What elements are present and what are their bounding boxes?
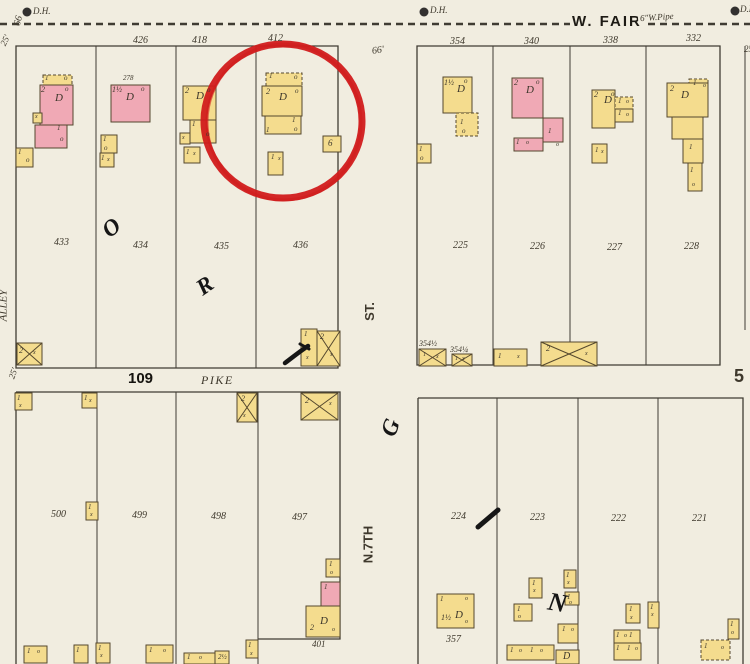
building-code-label: o (703, 83, 706, 89)
building-code-label: x (250, 651, 253, 657)
building-code-label: 1 (76, 647, 80, 654)
lot-number: 497 (292, 513, 307, 523)
building-code-label: o (462, 128, 466, 135)
building-code-label: o (692, 182, 695, 188)
building-code-label: D (55, 93, 63, 104)
building-code-label: 1 (103, 136, 107, 143)
building-code-label: o (626, 112, 629, 118)
building-code-label: o (465, 619, 468, 625)
building-code-label: o (540, 648, 543, 654)
building-code-label: D (526, 85, 534, 96)
building-code-label: 1 (595, 147, 599, 154)
building-code-label: 1 (192, 121, 196, 128)
street-label-pike: PIKE (201, 374, 234, 386)
building-code-label: 1 (498, 353, 502, 360)
building-code-label: o (163, 648, 166, 654)
address-number: 357 (446, 635, 461, 645)
building-code-label: D (563, 652, 570, 662)
building-code-label: 1 (186, 149, 190, 156)
building-code-label: 1 (618, 98, 622, 105)
building-code-label: 1 (618, 110, 622, 117)
building-code-label: 1 (423, 352, 426, 358)
building-code-label: 1 (548, 128, 552, 135)
building-code-label: 1 (693, 80, 697, 87)
building-code-label: 1 (248, 642, 252, 649)
building-code-label: x (585, 351, 588, 357)
pen-letter-r: R (192, 272, 218, 300)
building-code-label: 1 (517, 606, 521, 613)
building-code-label: 2 (241, 395, 245, 403)
block-number-109: 109 (128, 371, 153, 386)
building-code-label: o (60, 136, 64, 143)
building-code-label: o (420, 155, 424, 162)
building-code-label: 2 (670, 85, 674, 93)
address-number: 426 (133, 36, 148, 46)
building-code-label: 1 (27, 648, 31, 655)
building-code-label: 1 (329, 561, 333, 568)
building-code-label: x (651, 612, 654, 618)
building-code-label: o (207, 87, 211, 94)
building-code-label: o (295, 88, 299, 95)
map-labels-layer: D.H.D.H.D.HW. FAIR6″W.Pipe6625'426418412… (0, 0, 750, 664)
building-code-label: 1 (629, 632, 633, 639)
building-code-label: D (320, 616, 328, 627)
building-code-label: 1½ (112, 86, 122, 94)
building-code-label: 1 (17, 395, 21, 402)
lot-number: 435 (214, 242, 229, 252)
street-label-alley: ALLEY (0, 290, 9, 322)
pen-letter-g: G (377, 416, 404, 439)
building-code-label: x (100, 653, 103, 659)
building-code-label: o (37, 649, 40, 655)
building-code-label: 1½ (441, 614, 451, 622)
building-code-label: 2 (546, 345, 550, 353)
building-code-label: 1 (187, 654, 191, 661)
lot-number: 227 (607, 243, 622, 253)
pen-letter-n: N (546, 589, 569, 618)
hydrant-label: D.H (740, 5, 750, 14)
building-code-label: o (519, 648, 522, 654)
lot-number: 225 (453, 241, 468, 251)
dimension-label: 25' (0, 34, 12, 48)
building-code-label: 1 (616, 645, 620, 652)
sanborn-map: D.H.D.H.D.HW. FAIR6″W.Pipe6625'426418412… (0, 0, 750, 664)
building-code-label: 2 (310, 624, 314, 632)
lot-number: 434 (133, 241, 148, 251)
lot-number: 433 (54, 238, 69, 248)
address-number: 340 (524, 37, 539, 47)
building-code-label: 1 (57, 125, 61, 132)
building-code-label: o (206, 131, 210, 138)
building-code-label: x (517, 354, 520, 360)
building-code-label: o (536, 79, 540, 86)
lot-number: 221 (692, 514, 707, 524)
pen-letter-o: O (98, 213, 126, 241)
building-code-label: o (294, 126, 298, 133)
building-code-label: D (126, 92, 134, 103)
street-label-n-7th: N.7TH (361, 526, 374, 564)
building-code-label: 1 (562, 626, 566, 633)
building-code-label: o (330, 570, 333, 576)
building-code-label: x (107, 157, 110, 163)
building-code-label: 1 (530, 647, 534, 654)
lot-number: 436 (293, 241, 308, 251)
lot-number: 226 (530, 242, 545, 252)
building-code-label: D (196, 91, 204, 102)
building-code-label: x (533, 588, 536, 594)
building-code-label: 2 (305, 397, 309, 405)
building-code-label: o (199, 655, 202, 661)
building-code-label: 2 (514, 79, 518, 87)
lot-number: 224 (451, 512, 466, 522)
street-label-st: ST. (363, 302, 376, 321)
building-code-label: 1 (510, 647, 514, 654)
building-code-label: o (626, 99, 629, 105)
address-number: 332 (686, 34, 701, 44)
building-code-label: D (681, 90, 689, 101)
water-pipe-note: 6″W.Pipe (638, 12, 676, 24)
building-code-label: 1 (440, 596, 444, 603)
building-code-label: 1 (18, 149, 22, 156)
building-code-label: 1 (304, 331, 308, 338)
address-number: 354¼ (450, 346, 468, 354)
building-code-label: 1 (266, 127, 270, 134)
lot-number: 222 (611, 514, 626, 524)
building-code-label: x (462, 356, 465, 362)
dimension-label: 25 (744, 45, 750, 54)
lot-number: 498 (211, 512, 226, 522)
address-number: 354½ (419, 340, 437, 348)
building-code-label: 1 (650, 604, 654, 611)
building-code-label: 1 (627, 645, 631, 652)
building-code-label: o (26, 157, 30, 164)
building-code-label: o (294, 74, 298, 81)
address-number: 401 (312, 640, 326, 649)
building-code-label: 1 (324, 584, 328, 591)
address-number: 412 (268, 34, 283, 44)
building-code-label: 1 (532, 580, 536, 587)
building-code-label: o (518, 614, 521, 620)
building-code-label: x (19, 403, 22, 409)
building-code-label: 2 (19, 347, 23, 355)
building-code-label: D (457, 84, 465, 95)
building-code-label: 1 (629, 606, 633, 613)
building-code-label: 1 (98, 645, 102, 652)
building-code-label: 1½ (444, 79, 454, 87)
building-code-label: x (436, 354, 439, 360)
building-code-label: o (569, 600, 572, 606)
building-code-label: o (64, 75, 68, 82)
building-code-label: o (464, 78, 468, 85)
address-number: 338 (603, 36, 618, 46)
building-code-label: 1 (730, 621, 734, 628)
building-code-label: x (630, 615, 633, 621)
building-code-label: o (731, 630, 734, 636)
building-code-label: o (65, 86, 69, 93)
lot-number: 499 (132, 511, 147, 521)
address-number: 418 (192, 36, 207, 46)
building-code-label: 2 (266, 88, 270, 96)
building-code-label: 2½ (218, 654, 227, 661)
building-code-label: x (33, 350, 36, 356)
building-code-label: x (567, 580, 570, 586)
building-code-label: 1 (84, 395, 88, 402)
building-code-label: 1 (689, 144, 693, 151)
hydrant-label: D.H. (430, 6, 448, 15)
building-code-label: 2 (594, 91, 598, 99)
address-number: 354 (450, 37, 465, 47)
hydrant-label: D.H. (33, 7, 51, 16)
building-code-label: 1 (45, 75, 49, 82)
building-code-label: 1 (149, 647, 153, 654)
building-code-label: o (721, 645, 724, 651)
building-code-label: 6 (328, 139, 333, 148)
street-label-w-fair: W. FAIR (570, 14, 644, 29)
building-code-label: 1 (516, 139, 520, 146)
dimension-label: 66' (371, 45, 384, 57)
building-note: 278 (123, 75, 134, 82)
building-code-label: x (330, 352, 333, 358)
building-code-label: x (193, 151, 196, 157)
block-number-5: 5 (734, 367, 744, 385)
building-code-label: o (141, 86, 145, 93)
building-code-label: o (526, 140, 529, 146)
building-code-label: x (278, 156, 281, 162)
building-code-label: o (624, 633, 627, 639)
building-code-label: o (332, 627, 335, 633)
building-code-label: o (571, 627, 574, 633)
building-code-label: 1 (616, 632, 620, 639)
building-code-label: x (329, 401, 332, 407)
building-code-label: o (104, 145, 108, 152)
building-code-label: 1 (88, 504, 92, 511)
building-code-label: 1 (455, 356, 458, 362)
building-code-label: 2 (320, 333, 324, 341)
building-code-label: 1 (101, 155, 105, 162)
building-code-label: o (635, 646, 638, 652)
building-code-label: o (611, 91, 615, 98)
dimension-label: 66 (13, 15, 25, 27)
building-code-label: x (89, 398, 92, 404)
lot-number: 223 (530, 513, 545, 523)
building-code-label: x (35, 114, 38, 120)
building-code-label: 1 (292, 117, 296, 124)
building-code-label: o (556, 142, 559, 148)
building-code-label: x (601, 149, 604, 155)
lot-number: 500 (51, 510, 66, 520)
dimension-label: 25' (7, 367, 19, 380)
building-code-label: D (279, 92, 287, 103)
building-code-label: x (243, 413, 246, 419)
building-code-label: D (455, 610, 463, 621)
building-code-label: x (90, 512, 93, 518)
building-code-label: 1 (566, 572, 570, 579)
lot-number: 228 (684, 242, 699, 252)
building-code-label: 1 (690, 167, 694, 174)
building-code-label: 2 (185, 87, 189, 95)
building-code-label: 1 (271, 154, 275, 161)
building-code-label: 2 (41, 86, 45, 94)
building-code-label: 1 (269, 73, 273, 80)
building-code-label: 1 (460, 119, 464, 126)
building-code-label: o (465, 596, 468, 602)
building-code-label: 1 (704, 643, 708, 650)
building-code-label: x (306, 355, 309, 361)
building-code-label: 1 (419, 146, 423, 153)
building-code-label: x (182, 135, 185, 141)
